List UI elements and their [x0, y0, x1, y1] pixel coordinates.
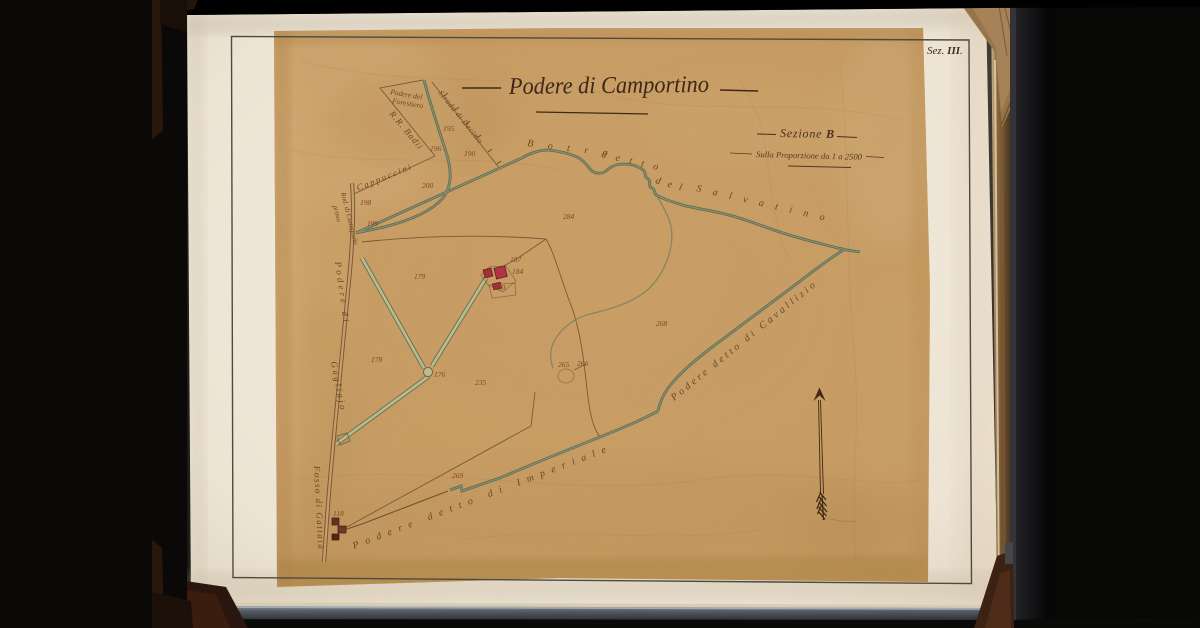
- svg-text:235: 235: [475, 378, 487, 387]
- svg-text:187: 187: [510, 255, 522, 264]
- svg-text:176: 176: [434, 370, 446, 379]
- svg-text:284: 284: [563, 212, 575, 221]
- svg-text:265: 265: [558, 360, 570, 369]
- svg-text:190: 190: [464, 149, 476, 158]
- svg-text:195: 195: [443, 124, 455, 133]
- svg-text:179: 179: [414, 272, 426, 281]
- svg-text:Sezione B: Sezione B: [780, 126, 835, 141]
- svg-text:Podere di Camportino: Podere di Camportino: [508, 72, 709, 100]
- svg-text:184: 184: [512, 267, 524, 276]
- svg-text:268: 268: [656, 319, 668, 328]
- svg-text:198: 198: [360, 198, 372, 207]
- svg-text:Sez. III.: Sez. III.: [927, 45, 963, 57]
- svg-text:266: 266: [577, 359, 589, 368]
- svg-text:180: 180: [494, 283, 506, 292]
- svg-text:178: 178: [371, 355, 383, 364]
- svg-text:269: 269: [452, 471, 464, 480]
- svg-text:200: 200: [422, 181, 434, 190]
- svg-text:196: 196: [430, 144, 442, 153]
- svg-text:118: 118: [333, 509, 344, 518]
- svg-text:199: 199: [367, 219, 379, 228]
